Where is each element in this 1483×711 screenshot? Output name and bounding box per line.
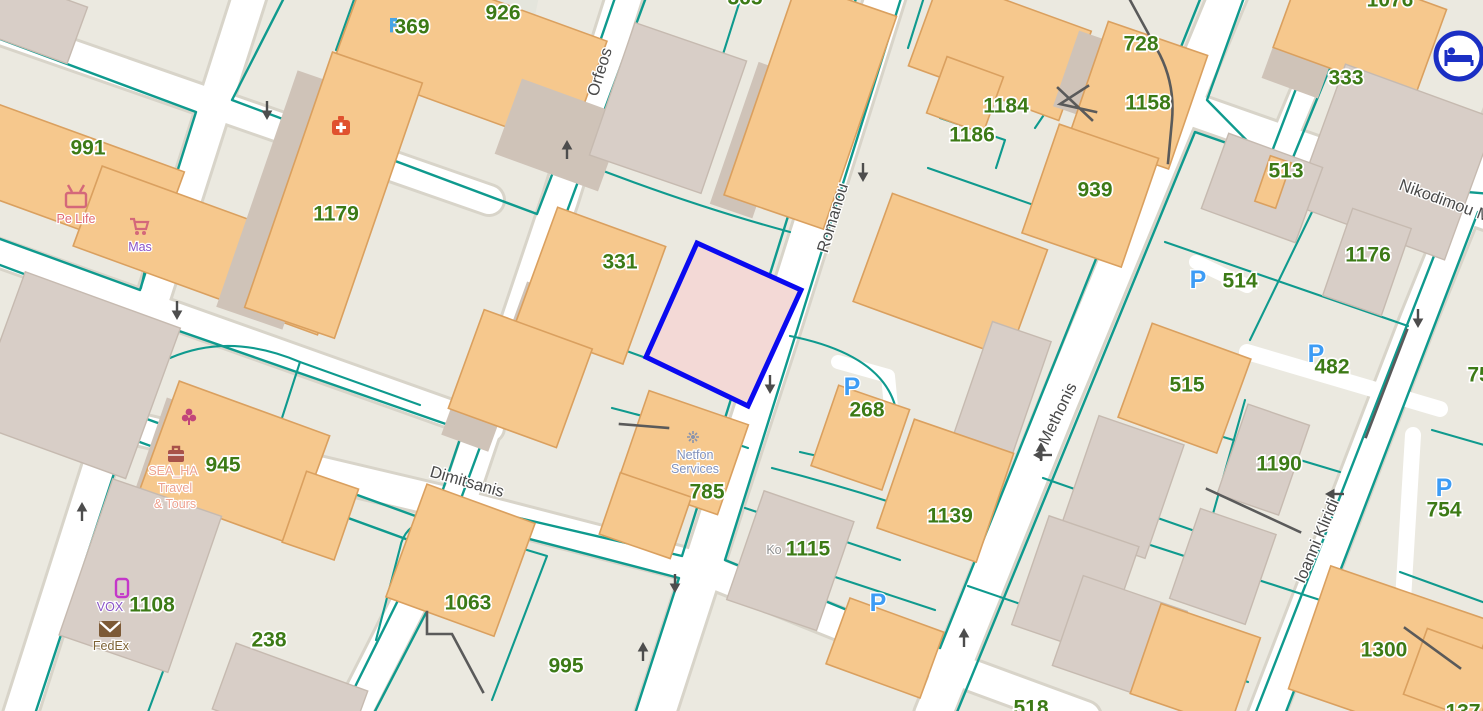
parcel-number-label: 1158 (1125, 92, 1171, 115)
parcel-number-label: 1184 (983, 95, 1029, 118)
parking-icon: P (1308, 340, 1325, 368)
poi-label: SEA_HA (148, 464, 198, 478)
poi-label: VOX (97, 600, 124, 614)
parcel-number-label: 939 (1077, 179, 1112, 202)
parcel-number-label: 514 (1222, 270, 1257, 293)
poi-label: Ko (766, 543, 781, 557)
parking-icon: P (844, 373, 861, 401)
parcel-number-label: 333 (1328, 67, 1363, 90)
hotel-icon[interactable] (1436, 33, 1482, 79)
parcel-number-label: 365 (727, 0, 762, 10)
parcel-number-label: 991 (70, 137, 105, 160)
parcel-number-label: 369 (394, 16, 429, 39)
envelope-icon (99, 621, 121, 637)
parcel-number-label: 995 (548, 655, 583, 678)
poi-label: Travel (158, 481, 192, 495)
poi-label: Services (671, 462, 719, 476)
parcel-number-label: 137 (1445, 701, 1480, 711)
parking-icon: P (1436, 474, 1453, 502)
parcel-number-label: 1300 (1361, 639, 1408, 662)
parcel-number-label: 238 (251, 629, 286, 652)
parcel-number-label: 513 (1268, 160, 1303, 183)
poi-label: Mas (128, 240, 152, 254)
parcel-number-label: 75 (1467, 364, 1483, 387)
parcel-number-label: 331 (602, 251, 637, 274)
parcel-number-label: 728 (1123, 33, 1158, 56)
parcel-number-label: 945 (205, 454, 240, 477)
map-canvas[interactable]: OrfeosRomanouDimitsanisNikodimou MMethon… (0, 0, 1483, 711)
parcel-number-label: 515 (1169, 374, 1204, 397)
parcel-number-label: 1179 (313, 203, 359, 226)
parcel-number-label: 1186 (949, 124, 995, 147)
poi-label: & Tours (154, 497, 196, 511)
parking-icon: P (1190, 266, 1207, 294)
parcel-number-label: 518 (1013, 697, 1048, 711)
poi-label: Pe Life (57, 212, 96, 226)
parcel-number-label: 1115 (786, 538, 831, 561)
parcel-number-label: 268 (849, 399, 884, 422)
poi-label: FedEx (93, 639, 130, 653)
parcel-number-label: 1176 (1345, 244, 1391, 267)
parcel-number-label: 1108 (129, 594, 175, 617)
parcel-number-label: 1076 (1367, 0, 1414, 12)
parcel-number-label: 1063 (445, 592, 492, 615)
parcel-number-label: 1190 (1256, 453, 1302, 476)
parcel-number-label: 785 (689, 481, 724, 504)
poi-label: Netfon (677, 448, 714, 462)
parking-icon: P (870, 589, 887, 617)
parcel-number-label: 1139 (927, 505, 973, 528)
parcel-number-label: 926 (485, 2, 520, 25)
